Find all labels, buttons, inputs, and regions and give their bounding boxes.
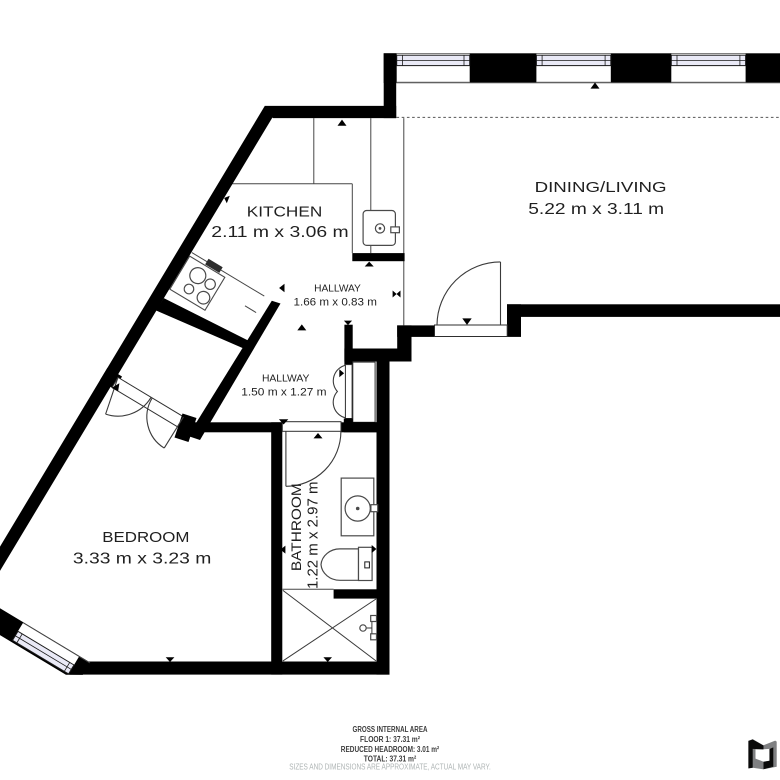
svg-text:REDUCED HEADROOM: 3.01 m²: REDUCED HEADROOM: 3.01 m² xyxy=(341,745,440,754)
svg-text:KITCHEN: KITCHEN xyxy=(247,205,323,221)
svg-text:BEDROOM: BEDROOM xyxy=(102,530,189,546)
svg-text:GROSS INTERNAL AREA: GROSS INTERNAL AREA xyxy=(353,725,428,734)
svg-text:FLOOR 1: 37.31 m²: FLOOR 1: 37.31 m² xyxy=(360,735,420,744)
svg-text:1.22 m x 2.97 m: 1.22 m x 2.97 m xyxy=(305,482,322,590)
svg-text:1.50 m x 1.27 m: 1.50 m x 1.27 m xyxy=(241,387,326,399)
svg-text:BATHROOM: BATHROOM xyxy=(289,483,304,571)
svg-text:DINING/LIVING: DINING/LIVING xyxy=(535,180,667,196)
svg-text:2.11 m x 3.06 m: 2.11 m x 3.06 m xyxy=(211,224,348,241)
svg-text:5.22 m x 3.11 m: 5.22 m x 3.11 m xyxy=(528,201,664,218)
svg-text:SIZES AND DIMENSIONS ARE APPRO: SIZES AND DIMENSIONS ARE APPROXIMATE, AC… xyxy=(289,762,491,771)
svg-text:3.33 m x 3.23 m: 3.33 m x 3.23 m xyxy=(73,551,212,568)
svg-text:HALLWAY: HALLWAY xyxy=(314,283,361,294)
svg-text:1.66 m x 0.83 m: 1.66 m x 0.83 m xyxy=(294,296,377,308)
svg-text:HALLWAY: HALLWAY xyxy=(262,373,310,384)
